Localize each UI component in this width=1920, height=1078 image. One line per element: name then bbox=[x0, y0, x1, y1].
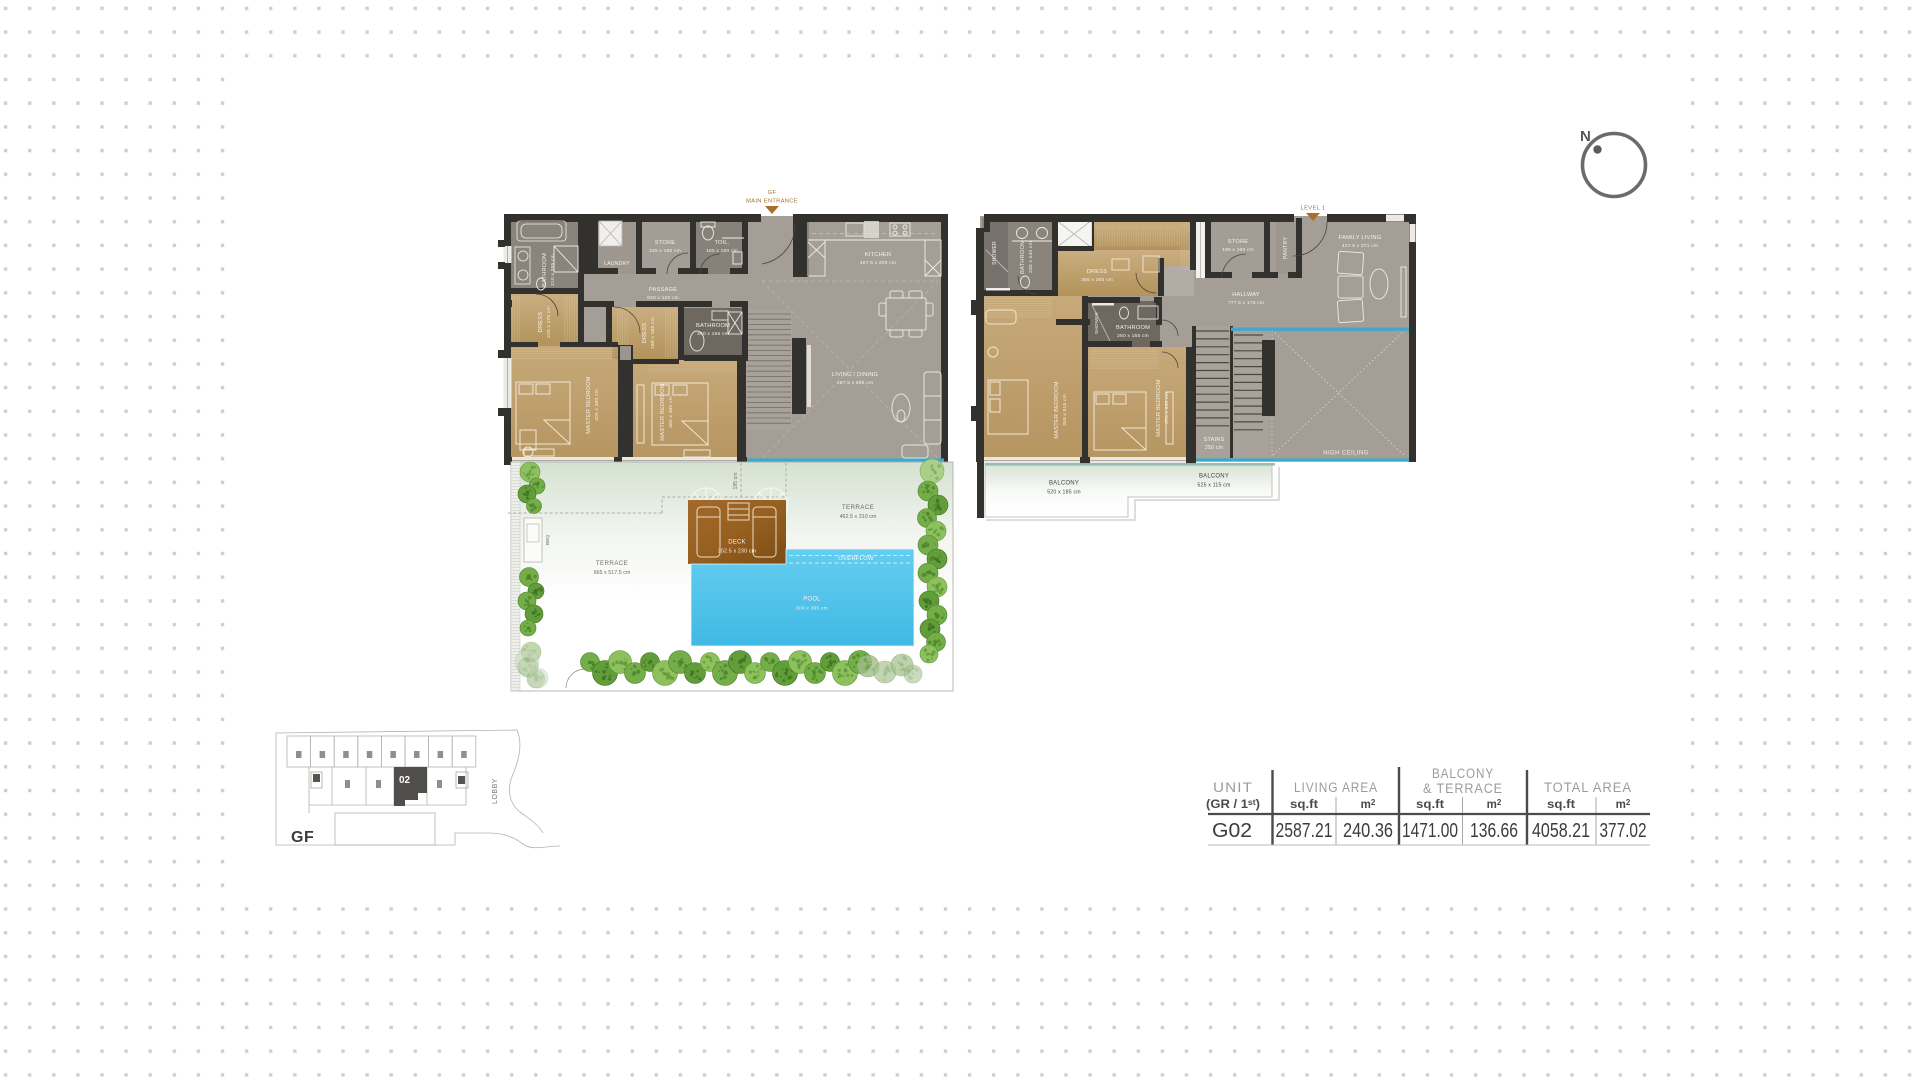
svg-text:BALCONY: BALCONY bbox=[1049, 481, 1079, 487]
svg-text:355 x 515 cm: 355 x 515 cm bbox=[1062, 394, 1068, 426]
svg-text:STORE: STORE bbox=[655, 240, 676, 246]
svg-text:SHOWER: SHOWER bbox=[1094, 312, 1099, 334]
svg-text:427.5 x 371 cm: 427.5 x 371 cm bbox=[1342, 243, 1378, 249]
svg-text:MASTER BEDROOM: MASTER BEDROOM bbox=[1054, 381, 1060, 439]
svg-text:BBQ: BBQ bbox=[545, 535, 551, 545]
svg-text:BATHROOM: BATHROOM bbox=[542, 253, 548, 287]
svg-text:520 x 185 cm: 520 x 185 cm bbox=[1047, 489, 1081, 495]
svg-text:MASTER BEDROOM: MASTER BEDROOM bbox=[1156, 379, 1162, 437]
svg-text:sq.ft: sq.ft bbox=[1290, 799, 1318, 811]
svg-text:188 x 165 cm: 188 x 165 cm bbox=[650, 317, 656, 349]
svg-text:250 cm: 250 cm bbox=[1205, 445, 1223, 451]
svg-text:02: 02 bbox=[399, 775, 411, 786]
svg-text:136.66: 136.66 bbox=[1470, 820, 1518, 842]
svg-text:sq.ft: sq.ft bbox=[1547, 799, 1575, 811]
svg-text:& TERRACE: & TERRACE bbox=[1423, 781, 1503, 796]
svg-text:BATHROOM: BATHROOM bbox=[1116, 325, 1150, 331]
svg-text:260 x 155 cm: 260 x 155 cm bbox=[697, 331, 729, 337]
svg-text:UNIT: UNIT bbox=[1213, 780, 1253, 795]
svg-text:405 x 390 cm: 405 x 390 cm bbox=[594, 389, 600, 421]
svg-text:250 x 155 cm: 250 x 155 cm bbox=[1117, 333, 1149, 339]
svg-text:4058.21: 4058.21 bbox=[1532, 820, 1590, 842]
svg-text:POOL: POOL bbox=[803, 597, 821, 603]
svg-text:LIVING / DINING: LIVING / DINING bbox=[832, 372, 878, 378]
svg-text:210 x 255 cm: 210 x 255 cm bbox=[550, 254, 556, 286]
svg-text:LOBBY: LOBBY bbox=[492, 778, 499, 804]
svg-text:BATHROOM: BATHROOM bbox=[696, 323, 730, 329]
svg-text:TERRACE: TERRACE bbox=[842, 504, 874, 511]
svg-text:STORE: STORE bbox=[1228, 239, 1249, 245]
svg-text:MASTER BEDROOM: MASTER BEDROOM bbox=[586, 376, 592, 434]
svg-text:LIVING AREA: LIVING AREA bbox=[1294, 780, 1378, 795]
svg-text:PASSAGE: PASSAGE bbox=[649, 287, 677, 293]
svg-text:225 x 170 cm: 225 x 170 cm bbox=[546, 306, 552, 338]
svg-text:462.5 x 310 cm: 462.5 x 310 cm bbox=[840, 514, 877, 520]
svg-text:245 x 160 cm: 245 x 160 cm bbox=[649, 248, 681, 254]
svg-text:G02: G02 bbox=[1212, 820, 1252, 842]
svg-text:235 x 240 cm: 235 x 240 cm bbox=[1028, 241, 1034, 273]
svg-text:800 x 395 cm: 800 x 395 cm bbox=[796, 605, 828, 611]
svg-text:DRESS: DRESS bbox=[642, 323, 648, 344]
svg-text:2587.21: 2587.21 bbox=[1276, 820, 1333, 842]
svg-text:MAIN ENTRANCE: MAIN ENTRANCE bbox=[746, 199, 798, 205]
svg-text:MASTER BEDROOM: MASTER BEDROOM bbox=[660, 383, 666, 441]
svg-text:FAMILY LIVING: FAMILY LIVING bbox=[1339, 235, 1382, 241]
svg-text:HALLWAY: HALLWAY bbox=[1232, 292, 1260, 298]
svg-text:BALCONY: BALCONY bbox=[1432, 766, 1494, 781]
svg-text:BALCONY: BALCONY bbox=[1199, 474, 1229, 480]
svg-text:TOIL.: TOIL. bbox=[714, 240, 729, 246]
svg-text:TERRACE: TERRACE bbox=[596, 560, 628, 567]
svg-text:380 x 360 cm: 380 x 360 cm bbox=[668, 396, 674, 428]
svg-text:195 cm: 195 cm bbox=[733, 472, 739, 489]
svg-text:DRESS: DRESS bbox=[1087, 269, 1108, 275]
svg-text:165 x 180 cm: 165 x 180 cm bbox=[706, 248, 738, 254]
svg-text:377.02: 377.02 bbox=[1600, 820, 1647, 842]
svg-text:777.5 x 176 cm: 777.5 x 176 cm bbox=[1228, 300, 1264, 306]
svg-text:LEVEL 1: LEVEL 1 bbox=[1301, 206, 1326, 212]
svg-text:487.5 x 665 cm: 487.5 x 665 cm bbox=[837, 380, 873, 386]
svg-text:525 x 115 cm: 525 x 115 cm bbox=[1197, 482, 1230, 488]
svg-text:DRESS: DRESS bbox=[538, 312, 544, 333]
svg-text:665 x 517.5 cm: 665 x 517.5 cm bbox=[594, 570, 631, 576]
svg-text:370 x 330 cm: 370 x 330 cm bbox=[1164, 392, 1170, 424]
svg-text:GF: GF bbox=[291, 829, 314, 846]
svg-text:sq.ft: sq.ft bbox=[1416, 799, 1444, 811]
svg-text:SHOWER: SHOWER bbox=[992, 241, 998, 265]
svg-text:KITCHEN: KITCHEN bbox=[865, 252, 891, 258]
svg-text:1471.00: 1471.00 bbox=[1402, 820, 1458, 842]
svg-text:OVERFLOW: OVERFLOW bbox=[838, 556, 874, 562]
svg-text:GF: GF bbox=[768, 190, 777, 196]
svg-text:PANTRY: PANTRY bbox=[1283, 237, 1289, 260]
svg-text:640 x 120 cm: 640 x 120 cm bbox=[647, 295, 679, 301]
svg-text:195 x 180 cm: 195 x 180 cm bbox=[1222, 247, 1254, 253]
svg-text:DECK: DECK bbox=[728, 540, 745, 546]
svg-text:240.36: 240.36 bbox=[1343, 820, 1393, 842]
svg-text:355 x 260 cm: 355 x 260 cm bbox=[1081, 277, 1113, 283]
svg-text:487.5 x 200 cm: 487.5 x 200 cm bbox=[860, 260, 896, 266]
svg-text:352.5 x 230 cm: 352.5 x 230 cm bbox=[718, 548, 756, 554]
svg-text:TOTAL AREA: TOTAL AREA bbox=[1544, 780, 1632, 795]
svg-text:BATHROOM: BATHROOM bbox=[1020, 240, 1026, 274]
svg-text:N: N bbox=[1580, 128, 1591, 145]
svg-text:STAIRS: STAIRS bbox=[1204, 437, 1225, 443]
svg-text:HIGH CEILING: HIGH CEILING bbox=[1323, 451, 1368, 457]
svg-text:LAUNDRY: LAUNDRY bbox=[604, 261, 630, 267]
